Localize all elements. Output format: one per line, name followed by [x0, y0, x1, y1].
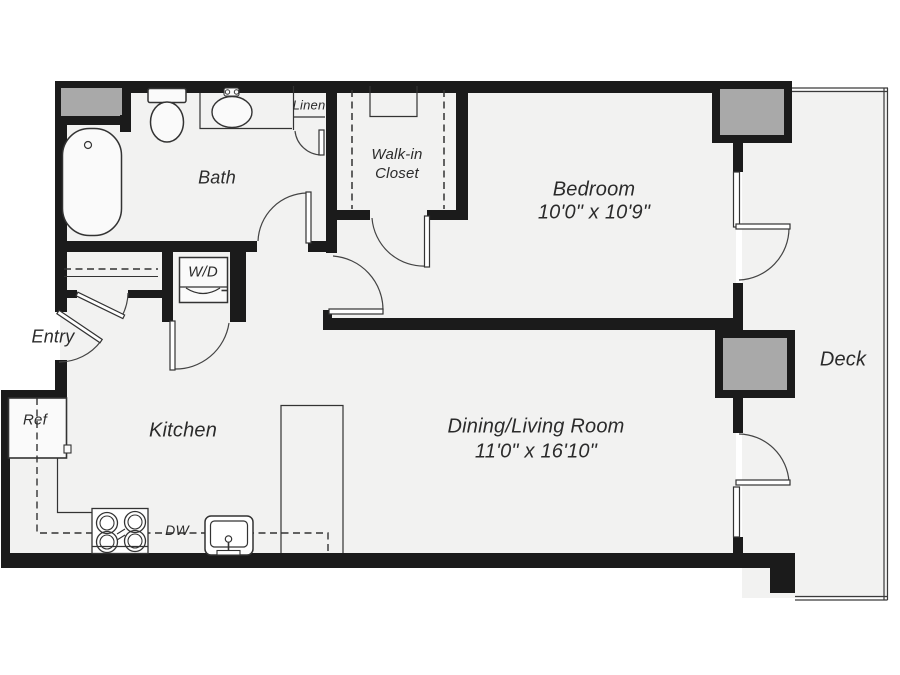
linen-door-panel [319, 130, 324, 155]
bedroom-window [734, 172, 740, 227]
bath-label: Bath [198, 168, 236, 189]
coat-closet-door-panel [76, 292, 124, 318]
bedroom-deck-door-panel [736, 224, 790, 229]
living-deck-door-panel [736, 480, 790, 485]
living-deck-door-arc [739, 434, 789, 482]
kitchen-sink-icon [205, 516, 253, 555]
floor-plan: Bath Linen Walk-in Closet Bedroom 10'0" … [0, 0, 900, 675]
bedroom-dimensions: 10'0" x 10'9" [538, 202, 650, 225]
linen-door-arc [295, 131, 321, 155]
dw-label: DW [165, 522, 189, 538]
stove-icon [92, 509, 148, 554]
deck-label: Deck [820, 349, 866, 372]
linen-label: Linen [293, 98, 326, 113]
bedroom-label: Bedroom [553, 179, 636, 202]
ref-label: Ref [23, 412, 47, 429]
walkin-closet-door-arc [372, 218, 427, 266]
entry-label: Entry [31, 327, 74, 348]
wd-door-panel [170, 321, 175, 370]
dining-living-dimensions: 11'0" x 16'10" [475, 441, 597, 464]
bath-door-arc [258, 193, 307, 241]
wd-door-arc [174, 323, 229, 369]
walkin-closet-door-panel [425, 216, 430, 267]
toilet-icon [148, 89, 186, 143]
walkin-closet-label-line1: Walk-in [371, 146, 422, 163]
bath-sink-icon [200, 88, 292, 129]
coat-closet-rod [64, 269, 158, 277]
walkin-closet-label-line2: Closet [375, 165, 419, 182]
deck-outline [792, 88, 888, 600]
bathtub-icon [63, 129, 122, 236]
vestibule-door-panel [329, 309, 383, 314]
vestibule-door-arc [333, 256, 383, 310]
coat-closet-door-arc [122, 293, 128, 316]
bedroom-deck-door-arc [739, 228, 789, 280]
fixtures-layer [0, 0, 900, 675]
living-window [734, 487, 740, 537]
bath-door-panel [306, 192, 311, 243]
wd-label: W/D [188, 264, 218, 281]
dining-living-label: Dining/Living Room [447, 416, 624, 439]
walkin-closet-label: Walk-in Closet [371, 145, 422, 183]
kitchen-label: Kitchen [149, 420, 217, 443]
